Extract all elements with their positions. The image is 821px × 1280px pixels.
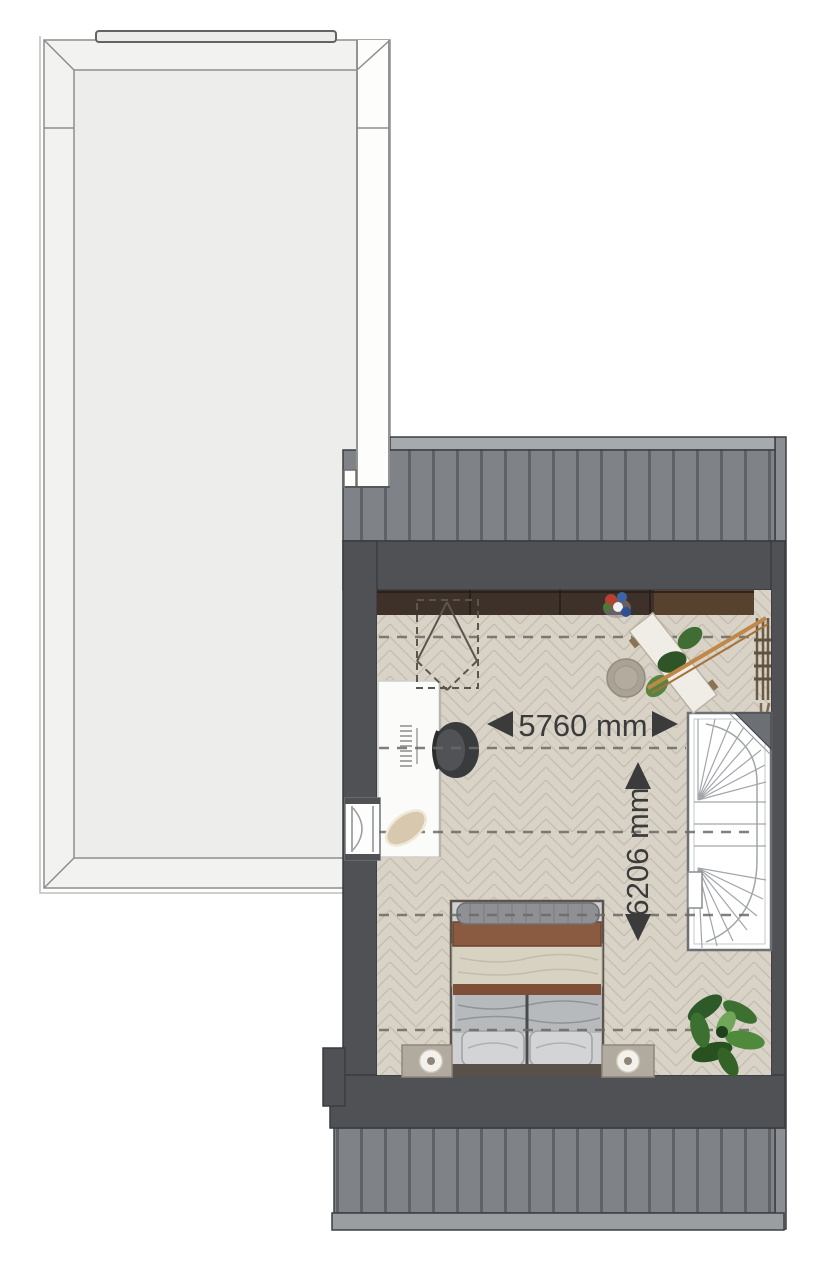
stair-newel (688, 872, 702, 908)
door-jamb-top (345, 798, 380, 804)
bed-throw-edge (453, 984, 601, 995)
wardrobe (377, 590, 754, 615)
bed-pillow-left (462, 1031, 524, 1066)
terrace-door (345, 798, 380, 860)
parapet-column-face (356, 40, 390, 487)
dimension-width-label: 5760 mm (518, 708, 647, 743)
wardrobe-light-segment (654, 590, 754, 615)
terrace-top-edge-bar (96, 31, 336, 42)
parapet-notch (344, 470, 356, 487)
wall-right (771, 541, 785, 1128)
bed-foot-roll (457, 903, 599, 924)
table-lamp-right-bulb (624, 1057, 632, 1065)
bed-pillow-right (530, 1031, 592, 1066)
flower-blue-2 (621, 607, 631, 617)
plant-center (716, 1026, 728, 1038)
round-pouf (607, 659, 645, 697)
roof-edge-top (390, 437, 775, 450)
chair-seat (435, 729, 465, 771)
floor-plan-drawing: 5760 mm 6206 mm (0, 0, 821, 1280)
nightstand-right (602, 1045, 654, 1077)
bed-headboard (447, 1064, 607, 1076)
flat-roof-terrace (40, 31, 390, 893)
floor-plan-page: 5760 mm 6206 mm (0, 0, 821, 1280)
wall-top (343, 541, 785, 590)
pitched-roof-bottom (334, 1128, 775, 1213)
flower-green (603, 603, 611, 611)
nightstand-left (402, 1045, 452, 1077)
bed-throw (453, 922, 601, 946)
flower-blue (617, 592, 627, 602)
dimension-depth: 6206 mm (620, 762, 655, 941)
terrace-roof-surface (74, 70, 358, 858)
dimension-depth-label: 6206 mm (620, 787, 655, 916)
wall-bottom-left-protrusion (323, 1048, 345, 1106)
pouf-top (614, 666, 638, 690)
pitched-roof-top (343, 450, 775, 541)
wall-bottom (330, 1075, 785, 1128)
office-chair (433, 722, 479, 778)
roof-edge-bottom (332, 1213, 784, 1230)
door-jamb-bottom (345, 854, 380, 860)
bed-quilt (452, 944, 602, 986)
table-lamp-left-bulb (427, 1057, 435, 1065)
double-bed (447, 901, 607, 1076)
